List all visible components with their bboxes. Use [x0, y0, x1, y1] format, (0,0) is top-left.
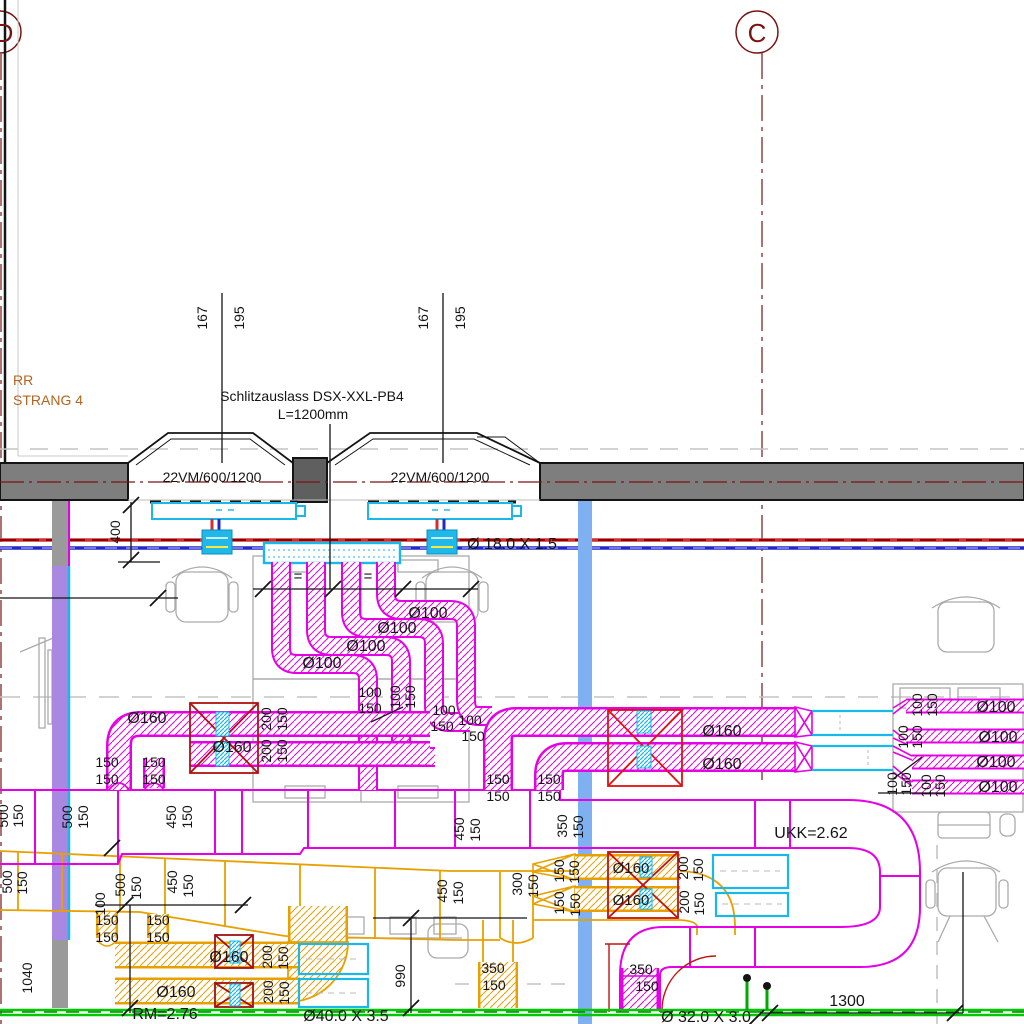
dim-label: 150	[932, 774, 948, 798]
dim-label: 22VM/600/1200	[391, 469, 490, 485]
dim-label: 150	[274, 739, 290, 763]
dim-label: 150	[95, 754, 119, 770]
dim-label: L=1200mm	[278, 406, 348, 422]
dim-label: Ø100	[346, 638, 385, 655]
dim-label: 150	[486, 788, 510, 804]
dim-label: 350	[554, 814, 570, 838]
dim-label: 150	[566, 860, 582, 884]
dim-label: Ø160	[209, 949, 248, 966]
dim-label: 200	[258, 739, 274, 763]
dim-label: 150	[635, 978, 659, 994]
dim-label: 350	[629, 961, 653, 977]
dim-label: UKK=2.62	[774, 825, 847, 842]
dim-label: 150	[909, 725, 925, 749]
dim-label: Ø 18.0 X 1.5	[467, 536, 557, 553]
dim-label: 450	[163, 805, 179, 829]
dim-label: 1300	[829, 993, 865, 1010]
dim-label: 150	[179, 805, 195, 829]
column-lavender	[52, 566, 68, 940]
dim-label: 450	[164, 870, 180, 894]
dim-label: 500	[59, 805, 75, 829]
dim-label: RM=2.76	[132, 1006, 197, 1023]
dim-label: Ø100	[978, 729, 1017, 746]
dim-label: 150	[95, 771, 119, 787]
dim-label: 167	[194, 306, 210, 330]
dim-label: 300	[509, 872, 525, 896]
dim-label: 200	[258, 707, 274, 731]
dim-label: 150	[276, 981, 292, 1005]
dim-label: 200	[675, 856, 691, 880]
slot-diffuser	[368, 503, 512, 519]
dim-label: 200	[260, 980, 276, 1004]
dim-label: 150	[467, 818, 483, 842]
dim-label: Ø160	[127, 710, 166, 727]
dim-label: 150	[537, 771, 561, 787]
dim-label: 200	[259, 945, 275, 969]
dim-label: 150	[567, 893, 583, 917]
dim-label: D	[0, 18, 13, 48]
dim-label: Ø100	[976, 699, 1015, 716]
dim-label: Ø160	[212, 739, 251, 756]
dim-label: Ø100	[377, 620, 416, 637]
dim-label: =	[294, 568, 303, 585]
dim-label: 990	[392, 964, 408, 988]
wall-pillar	[293, 458, 327, 502]
dim-label: 150	[358, 700, 382, 716]
dim-label: 150	[551, 891, 567, 915]
dim-label: 150	[274, 707, 290, 731]
column-gray-upper	[52, 500, 68, 566]
dim-label: 150	[690, 858, 706, 882]
dim-label: 150	[275, 946, 291, 970]
dim-label: 100	[387, 685, 403, 709]
distribution-plenum	[264, 543, 400, 563]
dim-label: Ø100	[302, 655, 341, 672]
dim-label: Ø40.0 X 3.5	[303, 1008, 388, 1024]
dim-label: 150	[537, 788, 561, 804]
dim-label: Ø160	[702, 756, 741, 773]
dim-label: 150	[75, 805, 91, 829]
dim-label: 150	[142, 771, 166, 787]
dim-label: 100	[432, 702, 456, 718]
dim-label: Schlitzauslass DSX-XXL-PB4	[220, 388, 404, 404]
dim-label: 200	[676, 890, 692, 914]
dim-label: 500	[112, 873, 128, 897]
dim-label: 150	[146, 929, 170, 945]
vav-box	[202, 530, 232, 554]
dim-label: 150	[551, 859, 567, 883]
dim-label: STRANG 4	[13, 392, 83, 408]
dim-label: 100	[358, 684, 382, 700]
dim-label: Ø160	[613, 860, 650, 877]
dim-label: Ø160	[156, 984, 195, 1001]
dim-label: 100	[458, 712, 482, 728]
dim-label: 195	[452, 306, 468, 330]
dim-label: 150	[486, 771, 510, 787]
hvac-plan-drawing: DC167195167195Schlitzauslass DSX-XXL-PB4…	[0, 0, 1024, 1024]
dim-label: Ø160	[702, 723, 741, 740]
dim-label: RR	[13, 372, 33, 388]
dim-label: 150	[128, 876, 144, 900]
dim-label: 150	[461, 728, 485, 744]
dim-label: 150	[180, 874, 196, 898]
dim-label: 150	[95, 929, 119, 945]
dim-label: 150	[570, 815, 586, 839]
dim-label: 500	[0, 870, 15, 894]
dim-label: 150	[898, 772, 914, 796]
column-gray-lower	[52, 940, 68, 1008]
dim-label: 100	[909, 693, 925, 717]
dim-label: 150	[430, 718, 454, 734]
dim-label: 350	[481, 960, 505, 976]
dim-label: 195	[231, 306, 247, 330]
dim-label: =	[364, 568, 373, 585]
dim-label: Ø100	[978, 779, 1017, 796]
dim-label: 22VM/600/1200	[163, 469, 262, 485]
dim-label: 167	[415, 306, 431, 330]
cad-canvas: DC167195167195Schlitzauslass DSX-XXL-PB4…	[0, 0, 1024, 1024]
dim-label: 150	[691, 892, 707, 916]
dim-label: 150	[10, 804, 26, 828]
dim-label: 450	[434, 879, 450, 903]
dim-label: Ø 32.0 X 3.0	[661, 1009, 751, 1024]
dim-label: 400	[107, 520, 123, 544]
slot-diffuser	[152, 503, 296, 519]
dim-label: 1040	[19, 962, 35, 993]
dim-label: 150	[482, 977, 506, 993]
vav-box	[427, 530, 457, 554]
dim-label: 450	[451, 817, 467, 841]
dim-label: 150	[142, 754, 166, 770]
dim-label: 150	[14, 871, 30, 895]
dim-label: Ø160	[613, 892, 650, 909]
dim-label: 150	[924, 693, 940, 717]
dim-label: 150	[95, 912, 119, 928]
dim-label: 150	[450, 881, 466, 905]
dim-label: C	[748, 18, 767, 48]
dim-label: Ø100	[976, 754, 1015, 771]
dim-label: 150	[525, 874, 541, 898]
dim-label: 150	[146, 912, 170, 928]
dim-label: 150	[402, 685, 418, 709]
